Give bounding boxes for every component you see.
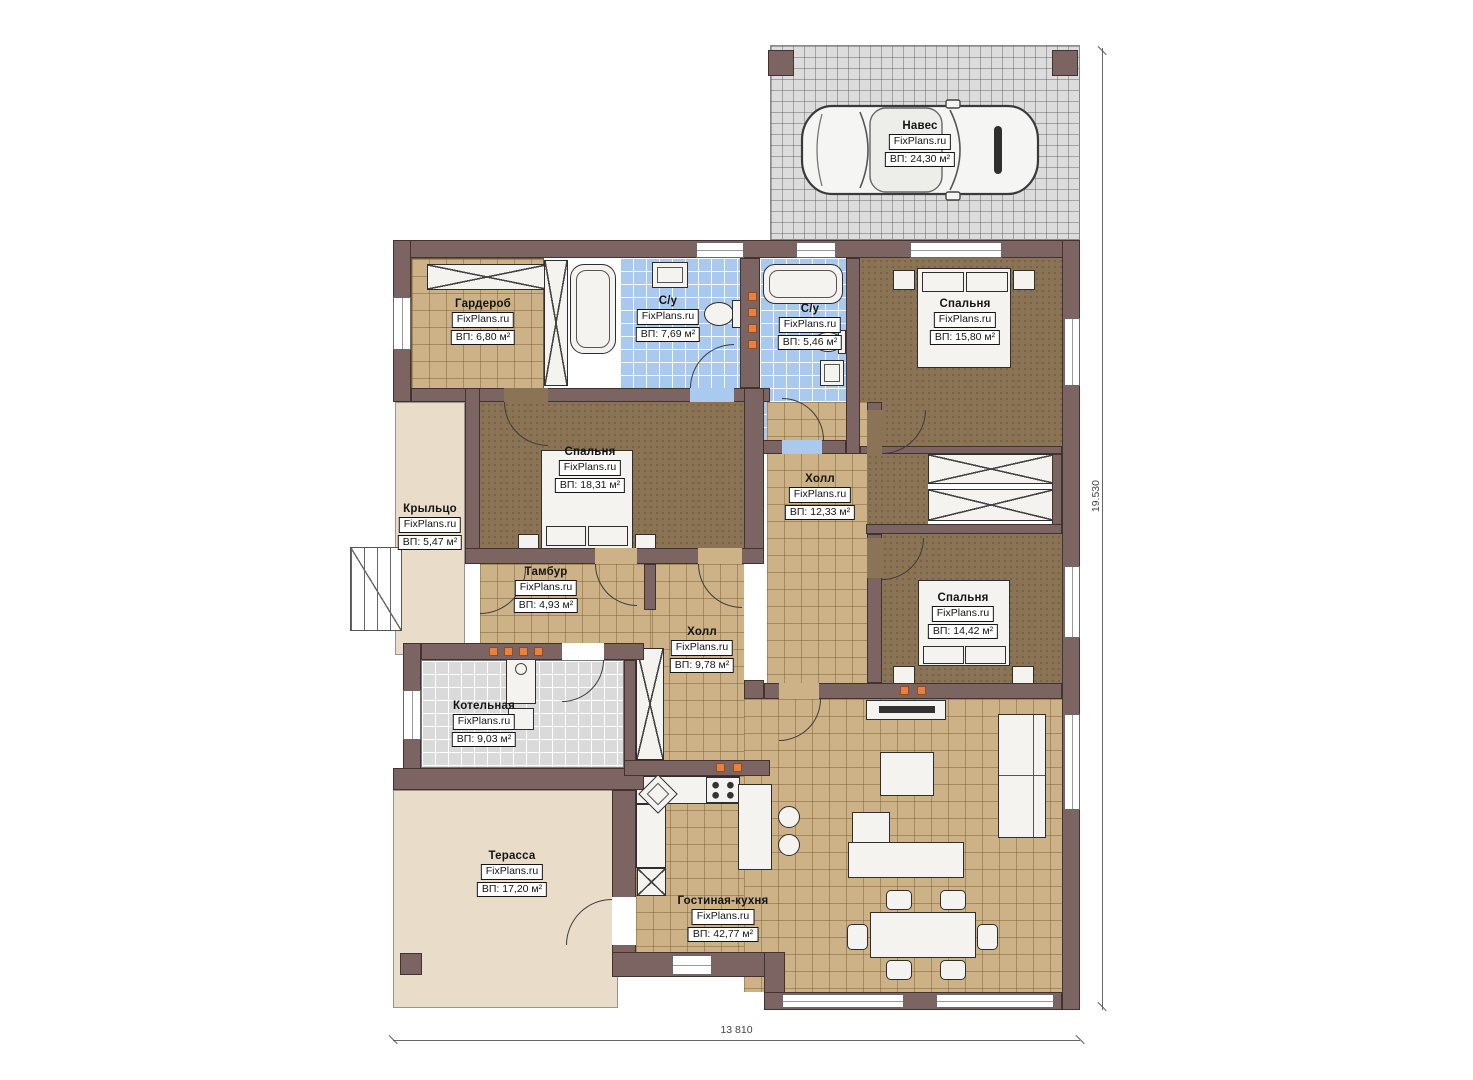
- sink-symbol: [820, 360, 844, 386]
- room-area: ВП: 15,80 м²: [930, 330, 1000, 346]
- door-gap: [690, 388, 734, 402]
- vent-dot: [519, 647, 528, 656]
- sink-symbol: [652, 262, 688, 288]
- room-area: ВП: 6,80 м²: [451, 330, 515, 346]
- watermark: FixPlans.ru: [399, 517, 462, 533]
- room-name: С/у: [659, 295, 678, 307]
- room-area: ВП: 42,77 м²: [688, 927, 758, 943]
- wall: [866, 524, 1062, 534]
- room-area: ВП: 17,20 м²: [477, 882, 547, 898]
- vent-dot: [489, 647, 498, 656]
- bathtub-symbol: [763, 264, 843, 304]
- carport-column: [768, 50, 794, 76]
- room-name: Навес: [902, 120, 937, 132]
- terrace-door-gap: [612, 897, 636, 945]
- room-area: ВП: 18,31 м²: [555, 478, 625, 494]
- closet-symbol: [636, 648, 664, 760]
- window: [1064, 318, 1080, 386]
- window: [672, 955, 712, 975]
- chair-symbol: [886, 960, 912, 980]
- window: [393, 297, 411, 350]
- watermark: FixPlans.ru: [637, 309, 700, 325]
- watermark: FixPlans.ru: [789, 487, 852, 503]
- door-gap: [867, 410, 882, 454]
- vent-dot: [748, 340, 757, 349]
- dimension-label-right: 19.530: [1090, 480, 1102, 512]
- room-area: ВП: 12,33 м²: [785, 505, 855, 521]
- room-name: Тамбур: [525, 566, 568, 578]
- vent-dot: [504, 647, 513, 656]
- window: [696, 242, 744, 258]
- nightstand: [1012, 666, 1034, 684]
- chair-symbol: [940, 960, 966, 980]
- nightstand: [893, 270, 915, 290]
- watermark: FixPlans.ru: [453, 714, 516, 730]
- room-area: ВП: 4,93 м²: [514, 598, 578, 614]
- door-gap: [698, 548, 742, 564]
- room-name: Холл: [687, 626, 717, 638]
- door-gap: [595, 548, 637, 564]
- wall: [624, 760, 770, 776]
- sofa-symbol: [848, 842, 964, 878]
- window: [936, 994, 1054, 1008]
- room-name: Спальня: [937, 592, 988, 604]
- dimension-line-right: [1102, 48, 1103, 1010]
- watermark: FixPlans.ru: [481, 864, 544, 880]
- watermark: FixPlans.ru: [559, 460, 622, 476]
- room-label-bedroom2: Спальня FixPlans.ru ВП: 18,31 м²: [555, 446, 625, 493]
- wall: [740, 258, 760, 388]
- floor-plan: Навес FixPlans.ru ВП: 24,30 м² Гардероб …: [0, 0, 1473, 1080]
- room-name: С/у: [801, 303, 820, 315]
- room-label-naves: Навес FixPlans.ru ВП: 24,30 м²: [885, 120, 955, 167]
- room-label-gostinaya: Гостиная-кухня FixPlans.ru ВП: 42,77 м²: [678, 895, 769, 942]
- watermark: FixPlans.ru: [889, 134, 952, 150]
- room-label-tambur: Тамбур FixPlans.ru ВП: 4,93 м²: [514, 566, 578, 613]
- wall: [624, 660, 636, 768]
- kitchen-counter: [636, 804, 666, 868]
- vent-dot: [733, 763, 742, 772]
- wall: [644, 564, 656, 610]
- room-label-terrassa: Терасса FixPlans.ru ВП: 17,20 м²: [477, 850, 547, 897]
- toilet-symbol: [704, 302, 734, 326]
- room-label-garderob: Гардероб FixPlans.ru ВП: 6,80 м²: [451, 298, 515, 345]
- wardrobe-symbol: [544, 260, 568, 386]
- closet-corridor-floor: [867, 454, 928, 524]
- room-area: ВП: 9,03 м²: [452, 732, 516, 748]
- pillow: [965, 646, 1006, 664]
- door-gap: [562, 643, 604, 660]
- door-gap: [504, 388, 548, 402]
- room-name: Гостиная-кухня: [678, 895, 769, 907]
- wall: [846, 258, 860, 454]
- watermark: FixPlans.ru: [692, 909, 755, 925]
- watermark: FixPlans.ru: [671, 640, 734, 656]
- chair-symbol: [886, 890, 912, 910]
- entrance-door-gap: [465, 568, 480, 614]
- room-area: ВП: 14,42 м²: [928, 624, 998, 640]
- vent-dot: [534, 647, 543, 656]
- wall: [421, 643, 644, 660]
- window: [1064, 566, 1080, 638]
- room-name: Котельная: [453, 700, 515, 712]
- vent-dot: [716, 763, 725, 772]
- pillow: [588, 526, 628, 546]
- terrace-column: [400, 953, 422, 975]
- bathtub-symbol: [570, 264, 616, 354]
- boiler-symbol: [506, 656, 536, 704]
- pillow: [966, 272, 1008, 292]
- terrace-floor: [393, 790, 618, 1008]
- room-area: ВП: 9,78 м²: [670, 658, 734, 674]
- coffee-table-symbol: [880, 752, 934, 796]
- vent-dot: [748, 292, 757, 301]
- room-name: Гардероб: [455, 298, 511, 310]
- closet-symbol: [928, 489, 1054, 521]
- room-label-kryltso: Крыльцо FixPlans.ru ВП: 5,47 м²: [398, 503, 462, 550]
- room-area: ВП: 24,30 м²: [885, 152, 955, 168]
- room-name: Спальня: [564, 446, 615, 458]
- dishwasher-symbol: [637, 868, 666, 896]
- watermark: FixPlans.ru: [779, 317, 842, 333]
- window: [796, 242, 836, 258]
- dimension-value: 13 810: [720, 1024, 752, 1036]
- chair-symbol: [977, 924, 998, 950]
- room-label-kotelnaya: Котельная FixPlans.ru ВП: 9,03 м²: [452, 700, 516, 747]
- window: [403, 690, 421, 740]
- wall: [744, 388, 764, 564]
- wall: [465, 388, 480, 564]
- window: [1064, 714, 1080, 810]
- nightstand: [893, 666, 915, 684]
- wall: [612, 790, 636, 976]
- pillow: [922, 272, 964, 292]
- door-gap: [779, 683, 819, 699]
- dimension-value: 19.530: [1090, 480, 1102, 512]
- room-name: Холл: [805, 473, 835, 485]
- room-area: ВП: 5,46 м²: [778, 335, 842, 351]
- room-area: ВП: 7,69 м²: [636, 327, 700, 343]
- stairs-symbol: [350, 547, 402, 631]
- room-label-bedroom3: Спальня FixPlans.ru ВП: 14,42 м²: [928, 592, 998, 639]
- window: [910, 242, 1002, 258]
- dimension-line-bottom: [393, 1040, 1080, 1041]
- vent-dot: [748, 308, 757, 317]
- pillow: [923, 646, 964, 664]
- vent-dot: [748, 324, 757, 333]
- dimension-label-bottom: 13 810: [393, 1024, 1080, 1036]
- cabinet-symbol: [998, 714, 1046, 838]
- wall: [744, 680, 764, 699]
- room-label-hall2: Холл FixPlans.ru ВП: 9,78 м²: [670, 626, 734, 673]
- wall: [1052, 454, 1062, 534]
- window: [782, 994, 904, 1008]
- dining-table-symbol: [870, 912, 976, 958]
- room-name: Крыльцо: [403, 503, 457, 515]
- room-label-su1: С/у FixPlans.ru ВП: 7,69 м²: [636, 295, 700, 342]
- wardrobe-symbol: [427, 264, 547, 290]
- stool-symbol: [778, 834, 800, 856]
- tv-stand-symbol: [866, 700, 946, 720]
- room-name: Терасса: [488, 850, 535, 862]
- vent-dot: [917, 686, 926, 695]
- door-gap: [867, 538, 882, 578]
- room-label-bedroom1: Спальня FixPlans.ru ВП: 15,80 м²: [930, 298, 1000, 345]
- stove-symbol: [706, 777, 740, 803]
- stool-symbol: [778, 806, 800, 828]
- hall-opening-threshold: [744, 564, 764, 680]
- room-label-su2: С/у FixPlans.ru ВП: 5,46 м²: [778, 303, 842, 350]
- nightstand: [1013, 270, 1035, 290]
- chair-symbol: [940, 890, 966, 910]
- watermark: FixPlans.ru: [452, 312, 515, 328]
- kitchen-island: [738, 784, 772, 870]
- watermark: FixPlans.ru: [934, 312, 997, 328]
- closet-symbol: [928, 454, 1054, 484]
- watermark: FixPlans.ru: [932, 606, 995, 622]
- vent-dot: [900, 686, 909, 695]
- chair-symbol: [847, 924, 868, 950]
- room-name: Спальня: [939, 298, 990, 310]
- door-gap: [782, 440, 822, 454]
- room-area: ВП: 5,47 м²: [398, 535, 462, 551]
- carport-column: [1052, 50, 1078, 76]
- wall: [393, 768, 644, 790]
- watermark: FixPlans.ru: [515, 580, 578, 596]
- pillow: [546, 526, 586, 546]
- room-label-hall1: Холл FixPlans.ru ВП: 12,33 м²: [785, 473, 855, 520]
